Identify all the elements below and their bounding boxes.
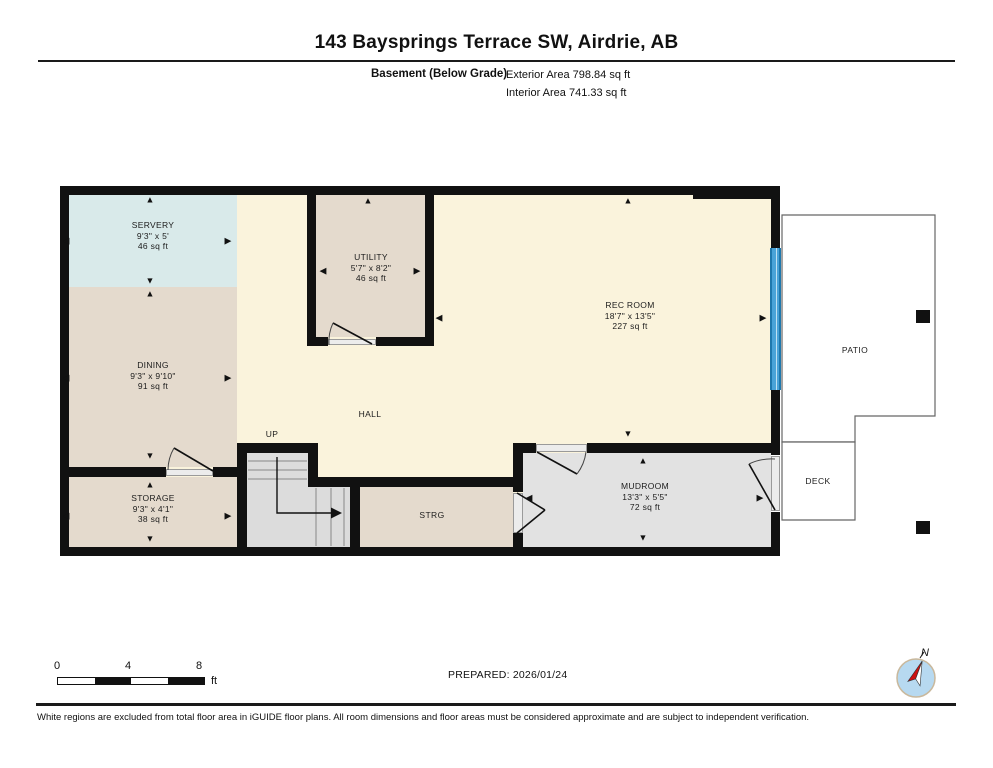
dim-arrow: [624, 197, 633, 206]
dim-arrow: [639, 457, 648, 466]
dim-arrow: [225, 374, 232, 383]
room-label-utility: UTILITY 5'7" x 8'2" 46 sq ft: [351, 252, 391, 284]
dim-arrow: [146, 290, 155, 299]
dim-arrow: [624, 430, 633, 439]
scale-tick-8: 8: [196, 660, 202, 672]
room-dims: 5'7" x 8'2": [351, 263, 391, 274]
floor-plan-page: 143 Baysprings Terrace SW, Airdrie, AB B…: [0, 0, 993, 768]
room-label-servery: SERVERY 9'3" x 5' 46 sq ft: [132, 220, 174, 252]
dim-arrow: [146, 452, 155, 461]
room-dims: 9'3" x 5': [137, 231, 169, 242]
door-leaves: [174, 323, 775, 533]
dim-arrow: [757, 494, 764, 503]
stair-direction-arrowhead: [331, 508, 342, 519]
dim-arrow: [526, 494, 533, 503]
scale-tick-0: 0: [54, 660, 60, 672]
prepared-date: PREPARED: 2026/01/24: [448, 669, 567, 681]
footer-divider: [36, 703, 956, 706]
dim-arrow: [63, 374, 70, 383]
dim-arrow: [760, 314, 767, 323]
dim-arrow: [146, 277, 155, 286]
patio-post: [916, 310, 930, 323]
room-name: STORAGE: [131, 493, 175, 504]
deck-post: [916, 521, 930, 534]
scale-segment: [168, 678, 205, 684]
label-patio: PATIO: [842, 345, 868, 355]
room-area: 46 sq ft: [356, 273, 386, 284]
stair-direction-path: [277, 457, 331, 513]
room-name: REC ROOM: [605, 300, 654, 311]
room-label-rec-room: REC ROOM 18'7" x 13'5" 227 sq ft: [605, 300, 656, 332]
dim-arrow: [436, 314, 443, 323]
room-dims: 9'3" x 4'1": [133, 504, 173, 515]
room-dims: 13'3" x 5'5": [622, 492, 668, 503]
dim-arrow: [146, 481, 155, 490]
room-area: 227 sq ft: [612, 321, 647, 332]
dim-arrow: [225, 512, 232, 521]
dim-arrow: [320, 267, 327, 276]
stair-treads: [248, 461, 344, 546]
dim-arrow: [63, 237, 70, 246]
scale-segment: [58, 678, 95, 684]
room-area: 72 sq ft: [630, 502, 660, 513]
label-up: UP: [266, 429, 279, 439]
room-name: DINING: [137, 360, 169, 371]
scale-segment: [131, 678, 168, 684]
dim-arrow: [146, 196, 155, 205]
room-name: MUDROOM: [621, 481, 669, 492]
dim-arrow: [63, 512, 70, 521]
room-name: UTILITY: [354, 252, 388, 263]
room-dims: 9'3" x 9'10": [130, 371, 176, 382]
label-deck: DECK: [805, 476, 830, 486]
compass-icon: N: [893, 645, 943, 701]
label-hall: HALL: [359, 409, 382, 419]
room-label-dining: DINING 9'3" x 9'10" 91 sq ft: [130, 360, 176, 392]
scale-segment: [95, 678, 132, 684]
room-name: SERVERY: [132, 220, 174, 231]
dim-arrow: [414, 267, 421, 276]
patio-outline: [782, 215, 935, 442]
disclaimer-text: White regions are excluded from total fl…: [37, 712, 809, 723]
scale-bar: [57, 677, 205, 685]
room-area: 38 sq ft: [138, 514, 168, 525]
room-area: 46 sq ft: [138, 241, 168, 252]
dim-arrow: [146, 535, 155, 544]
label-strg: STRG: [419, 510, 444, 520]
room-label-storage: STORAGE 9'3" x 4'1" 38 sq ft: [131, 493, 175, 525]
room-dims: 18'7" x 13'5": [605, 311, 656, 322]
door-swing-arcs: [168, 323, 775, 474]
compass-north-label: N: [921, 647, 929, 659]
dim-arrow: [639, 534, 648, 543]
room-label-mudroom: MUDROOM 13'3" x 5'5" 72 sq ft: [621, 481, 669, 513]
scale-unit: ft: [211, 675, 217, 687]
dim-arrow: [364, 197, 373, 206]
scale-tick-4: 4: [125, 660, 131, 672]
dim-arrow: [225, 237, 232, 246]
room-area: 91 sq ft: [138, 381, 168, 392]
